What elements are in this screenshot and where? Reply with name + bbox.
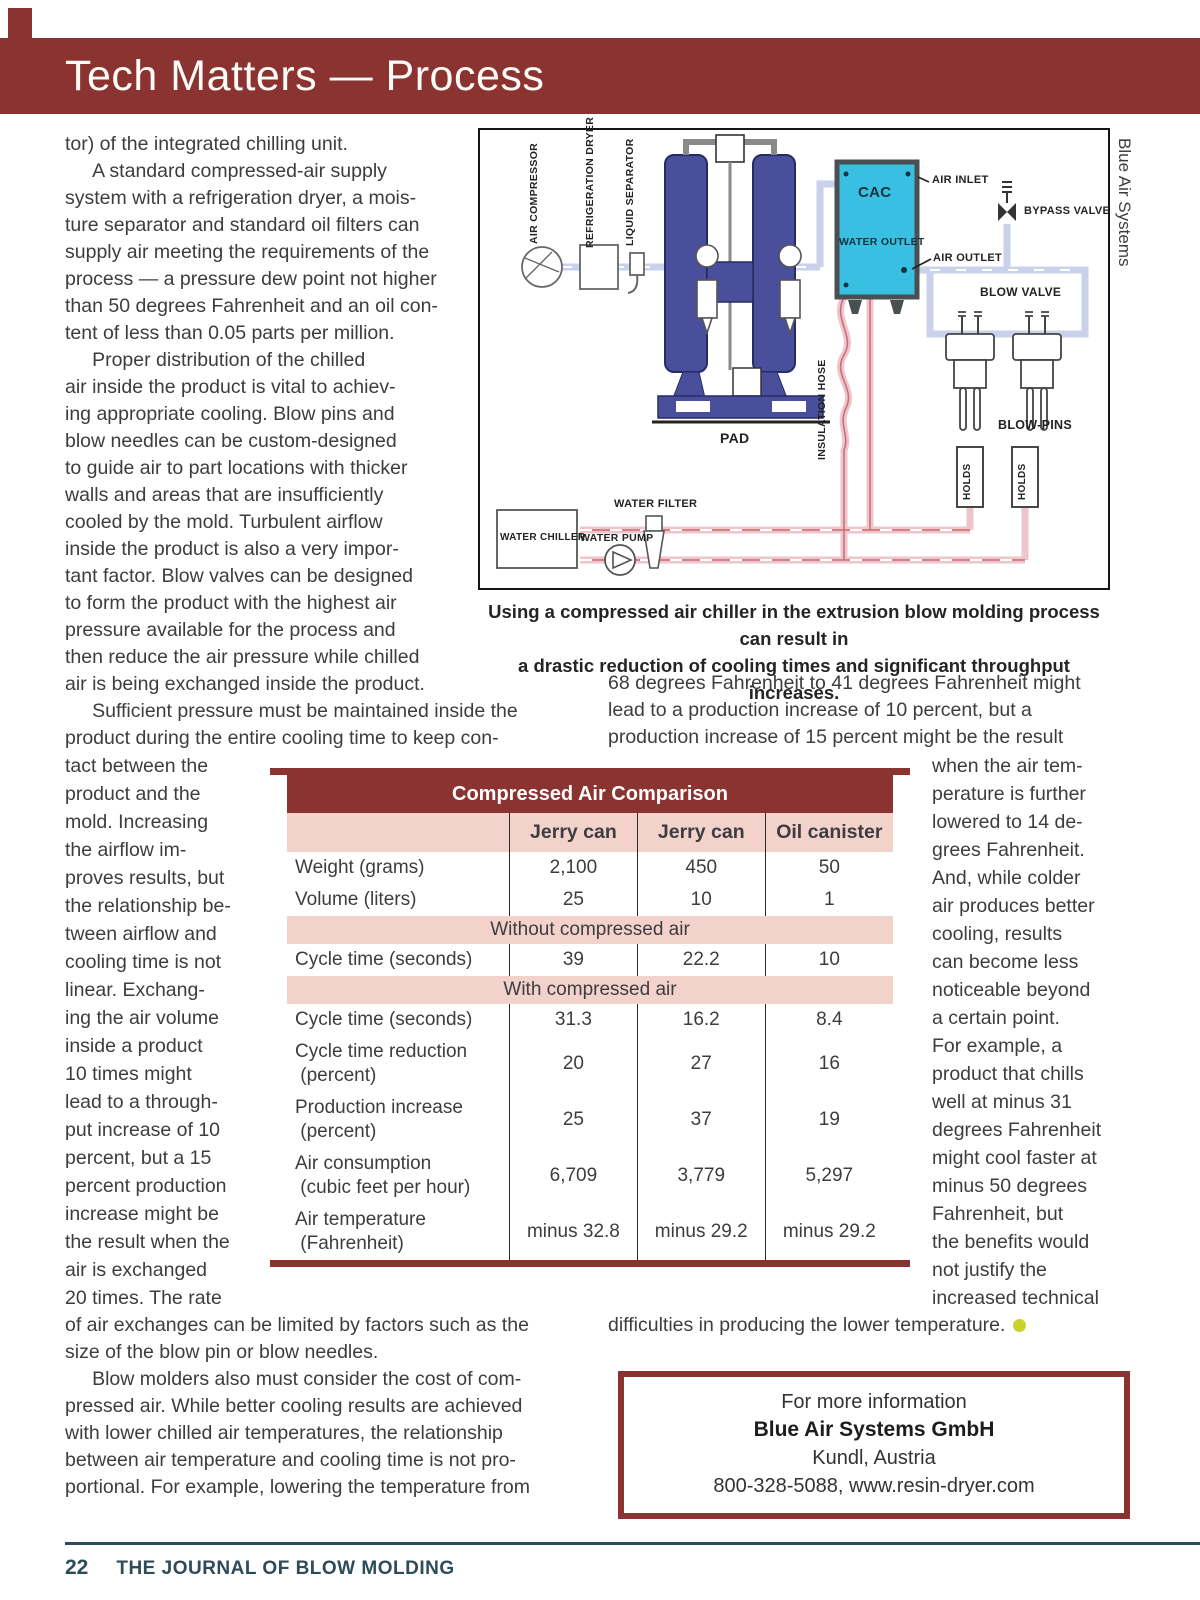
info-contact: 800-328-5088, www.resin-dryer.com	[624, 1472, 1124, 1500]
journal-name: THE JOURNAL OF BLOW MOLDING	[116, 1558, 454, 1580]
blow-valve-assemblies	[946, 312, 1061, 430]
refrigeration-dryer-symbol	[580, 245, 618, 289]
row-value: 37	[637, 1092, 765, 1148]
bypass-valve-label: BYPASS VALVE	[1024, 205, 1110, 217]
table-row: Cycle time (seconds) 39 22.2 10	[287, 944, 893, 976]
article-col1-narrow: tact between the product and the mold. I…	[65, 752, 247, 1312]
bypass-valve-symbol	[998, 182, 1016, 221]
photo-credit: Blue Air Systems	[1114, 138, 1134, 268]
row-value: 2,100	[510, 852, 638, 884]
corner-mark	[8, 8, 32, 38]
table-bottom-rule	[270, 1260, 910, 1267]
magazine-page: Tech Matters — Process tor) of the integ…	[0, 0, 1200, 1600]
table-row: Cycle time reduction (percent) 20 27 16	[287, 1036, 893, 1092]
table-title: Compressed Air Comparison	[287, 775, 893, 813]
row-label: Cycle time (seconds)	[287, 944, 510, 976]
row-value: 19	[765, 1092, 893, 1148]
row-value: 50	[765, 852, 893, 884]
section-label: With compressed air	[287, 976, 893, 1004]
water-pump-label: WATER PUMP	[580, 532, 653, 544]
row-value: 39	[510, 944, 638, 976]
blow-pins-label: BLOW-PINS	[998, 418, 1072, 432]
header-band: Tech Matters — Process	[0, 38, 1200, 114]
table-section-row: Without compressed air	[287, 916, 893, 944]
air-compressor-symbol	[522, 247, 562, 287]
liquid-separator-label: LIQUID SEPARATOR	[624, 136, 636, 246]
header-col-1: Jerry can	[510, 813, 638, 852]
table-header-row: Jerry can Jerry can Oil canister	[287, 813, 893, 852]
row-value: 25	[510, 1092, 638, 1148]
table-top-rule	[270, 768, 910, 775]
table-section-row: With compressed air	[287, 976, 893, 1004]
info-location: Kundl, Austria	[624, 1444, 1124, 1472]
article-col2-bottom: difficulties in producing the lower temp…	[608, 1312, 1138, 1339]
table-row: Weight (grams) 2,100 450 50	[287, 852, 893, 884]
row-value: minus 29.2	[765, 1204, 893, 1260]
diagram-artwork	[480, 130, 1108, 588]
row-label: Production increase (percent)	[287, 1092, 510, 1148]
water-chiller-label: WATER CHILLER	[500, 532, 574, 543]
row-value: 27	[637, 1036, 765, 1092]
article-col1-bottom: of air exchanges can be limited by facto…	[65, 1312, 580, 1501]
section-label: Without compressed air	[287, 916, 893, 944]
row-value: 16	[765, 1036, 893, 1092]
row-value: 450	[637, 852, 765, 884]
footer: 22 THE JOURNAL OF BLOW MOLDING	[65, 1556, 455, 1580]
holds-label-2: HOLDS	[1017, 452, 1028, 500]
comparison-table: Jerry can Jerry can Oil canister Weight …	[287, 813, 893, 1260]
article-col1-mid: Sufficient pressure must be maintained i…	[65, 698, 580, 752]
row-value: 8.4	[765, 1004, 893, 1036]
desiccant-tanks	[652, 135, 830, 422]
row-value: 25	[510, 884, 638, 916]
row-label: Weight (grams)	[287, 852, 510, 884]
water-outlet-label: WATER OUTLET	[839, 236, 925, 248]
table-row: Volume (liters) 25 10 1	[287, 884, 893, 916]
info-box: For more information Blue Air Systems Gm…	[618, 1371, 1130, 1519]
row-value: minus 29.2	[637, 1204, 765, 1260]
air-inlet-label: AIR INLET	[932, 174, 988, 186]
row-value: 16.2	[637, 1004, 765, 1036]
row-value: 10	[637, 884, 765, 916]
info-company: Blue Air Systems GmbH	[624, 1416, 1124, 1444]
blow-valve-label: BLOW VALVE	[980, 285, 1061, 299]
row-value: 6,709	[510, 1148, 638, 1204]
row-value: minus 32.8	[510, 1204, 638, 1260]
row-value: 31.3	[510, 1004, 638, 1036]
table-row: Production increase (percent) 25 37 19	[287, 1092, 893, 1148]
row-value: 3,779	[637, 1148, 765, 1204]
cac-label: CAC	[858, 184, 891, 201]
row-value: 5,297	[765, 1148, 893, 1204]
page-title: Tech Matters — Process	[0, 38, 1200, 101]
row-label: Cycle time reduction (percent)	[287, 1036, 510, 1092]
row-label: Air consumption (cubic feet per hour)	[287, 1148, 510, 1204]
air-compressor-label: AIR COMPRESSOR	[528, 142, 540, 244]
comparison-table-block: Compressed Air Comparison Jerry can Jerr…	[270, 768, 910, 1267]
row-value: 22.2	[637, 944, 765, 976]
row-label: Cycle time (seconds)	[287, 1004, 510, 1036]
separator-drain	[628, 275, 637, 293]
table-row: Air temperature (Fahrenheit) minus 32.8 …	[287, 1204, 893, 1260]
refrigeration-dryer-label: REFRIGERATION DRYER	[584, 128, 596, 248]
article-col2-bottom-text: difficulties in producing the lower temp…	[608, 1314, 1005, 1336]
table-row: Air consumption (cubic feet per hour) 6,…	[287, 1148, 893, 1204]
row-value: 1	[765, 884, 893, 916]
row-label: Air temperature (Fahrenheit)	[287, 1204, 510, 1260]
row-label: Volume (liters)	[287, 884, 510, 916]
liquid-separator-symbol	[630, 253, 644, 275]
row-value: 10	[765, 944, 893, 976]
table-row: Cycle time (seconds) 31.3 16.2 8.4	[287, 1004, 893, 1036]
article-col2-narrow: when the air tem- perature is further lo…	[932, 752, 1132, 1312]
air-outlet-label: AIR OUTLET	[933, 252, 1002, 264]
water-filter-label: WATER FILTER	[614, 498, 697, 510]
header-col-2: Jerry can	[637, 813, 765, 852]
info-line-1: For more information	[624, 1388, 1124, 1416]
end-of-article-dot	[1013, 1319, 1026, 1332]
header-empty	[287, 813, 510, 852]
process-diagram: AIR COMPRESSOR REFRIGERATION DRYER LIQUI…	[478, 128, 1110, 590]
row-value: 20	[510, 1036, 638, 1092]
footer-rule	[65, 1542, 1200, 1545]
pad-label: PAD	[720, 430, 749, 446]
holds-label-1: HOLDS	[962, 452, 973, 500]
header-col-3: Oil canister	[765, 813, 893, 852]
figure-caption: Using a compressed air chiller in the ex…	[480, 598, 1108, 706]
insulation-hose-label: INSULATION HOSE	[816, 314, 828, 460]
page-number: 22	[65, 1556, 88, 1580]
article-col1-top: tor) of the integrated chilling unit. A …	[65, 131, 475, 698]
